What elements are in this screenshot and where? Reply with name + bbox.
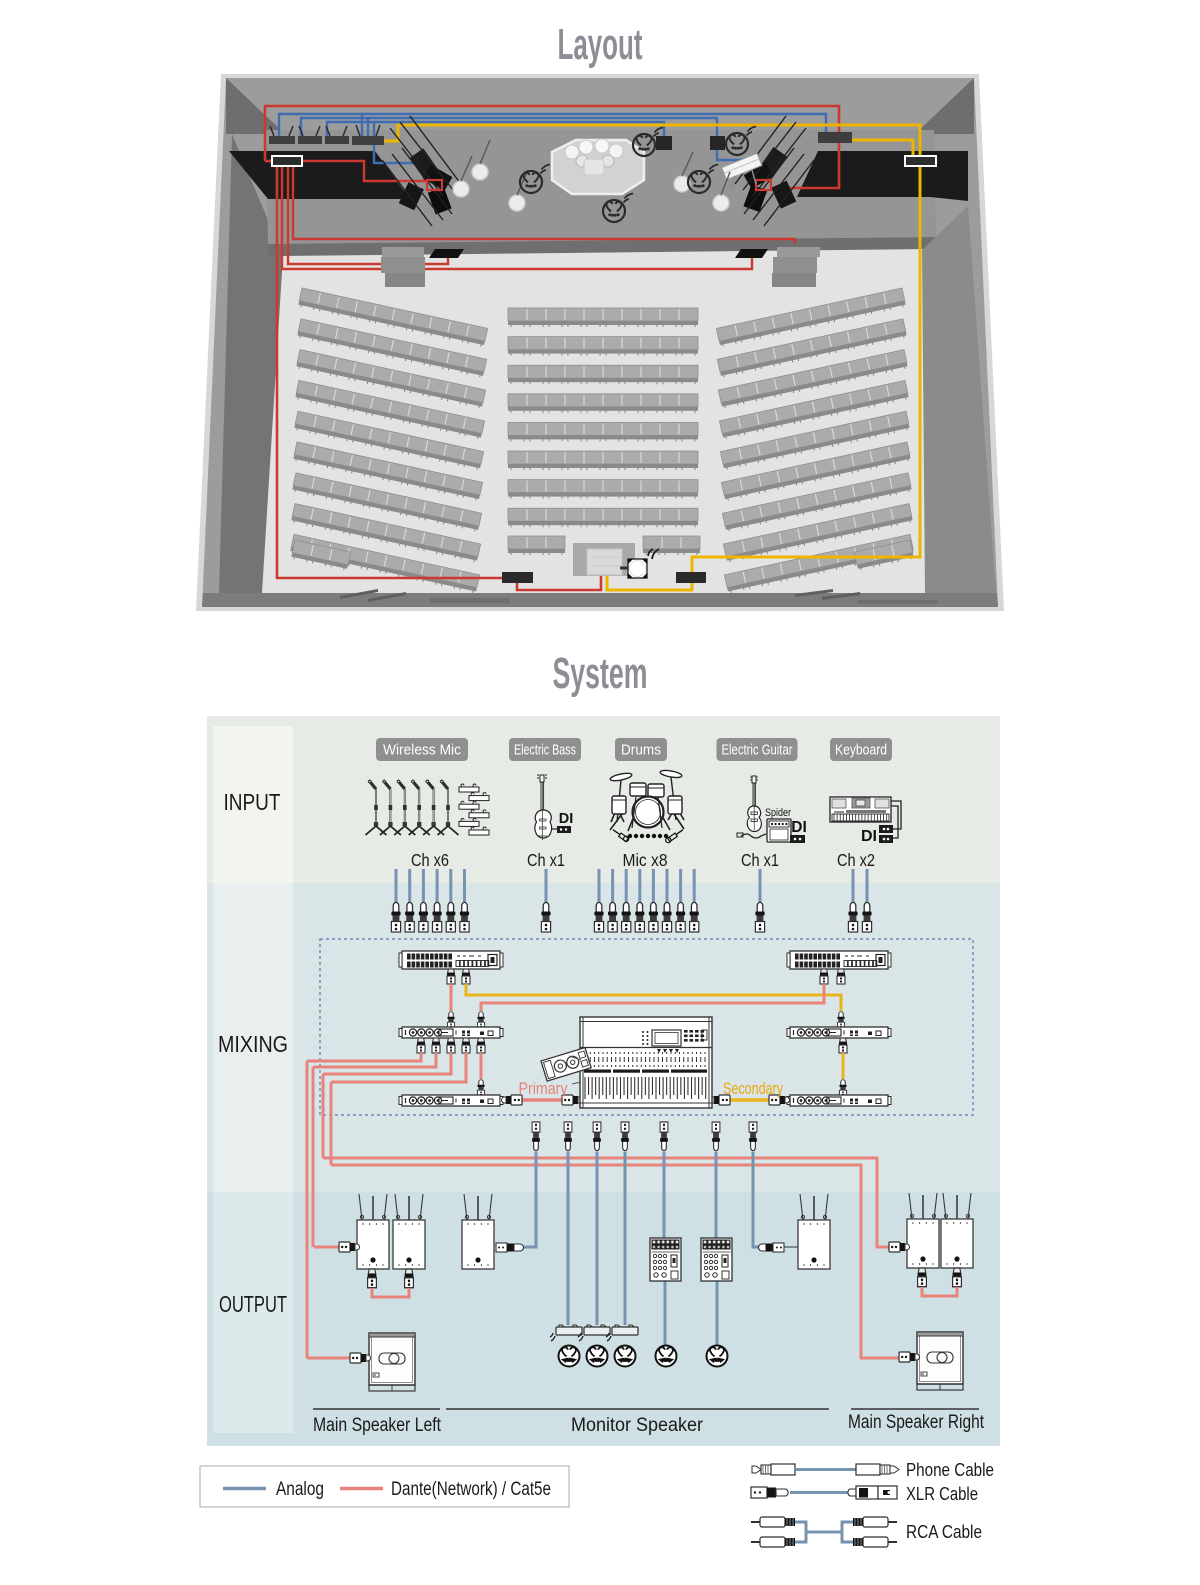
svg-text:Spider: Spider (765, 807, 791, 819)
svg-text:Mic x8: Mic x8 (623, 850, 668, 870)
svg-text:Primary: Primary (519, 1079, 568, 1098)
svg-text:Layout: Layout (558, 20, 643, 69)
svg-text:DI: DI (791, 819, 807, 836)
svg-text:XLR Cable: XLR Cable (906, 1484, 978, 1504)
svg-text:INPUT: INPUT (224, 789, 281, 815)
svg-text:Drums: Drums (621, 743, 661, 759)
svg-text:DI: DI (559, 811, 574, 827)
svg-text:Phone Cable: Phone Cable (906, 1460, 994, 1480)
svg-text:Ch x1: Ch x1 (741, 850, 779, 870)
svg-text:Analog: Analog (276, 1479, 324, 1500)
svg-text:System: System (553, 649, 648, 698)
svg-text:Ch x2: Ch x2 (837, 850, 875, 870)
svg-text:MIXING: MIXING (218, 1031, 288, 1057)
svg-text:Monitor Speaker: Monitor Speaker (571, 1415, 704, 1436)
svg-text:Main Speaker Right: Main Speaker Right (848, 1412, 985, 1433)
svg-text:Ch x6: Ch x6 (411, 850, 449, 870)
svg-text:Electric Guitar: Electric Guitar (722, 743, 793, 759)
svg-text:Wireless Mic: Wireless Mic (383, 743, 461, 759)
svg-text:DI: DI (861, 828, 877, 845)
svg-text:Ch x1: Ch x1 (527, 850, 565, 870)
svg-text:Dante(Network) / Cat5e: Dante(Network) / Cat5e (391, 1479, 551, 1500)
svg-text:RCA Cable: RCA Cable (906, 1522, 982, 1542)
svg-text:Electric Bass: Electric Bass (514, 743, 576, 759)
svg-text:Secondary: Secondary (723, 1079, 783, 1098)
svg-text:Main Speaker Left: Main Speaker Left (313, 1415, 442, 1436)
svg-text:OUTPUT: OUTPUT (219, 1291, 287, 1317)
svg-text:Keyboard: Keyboard (835, 743, 887, 759)
